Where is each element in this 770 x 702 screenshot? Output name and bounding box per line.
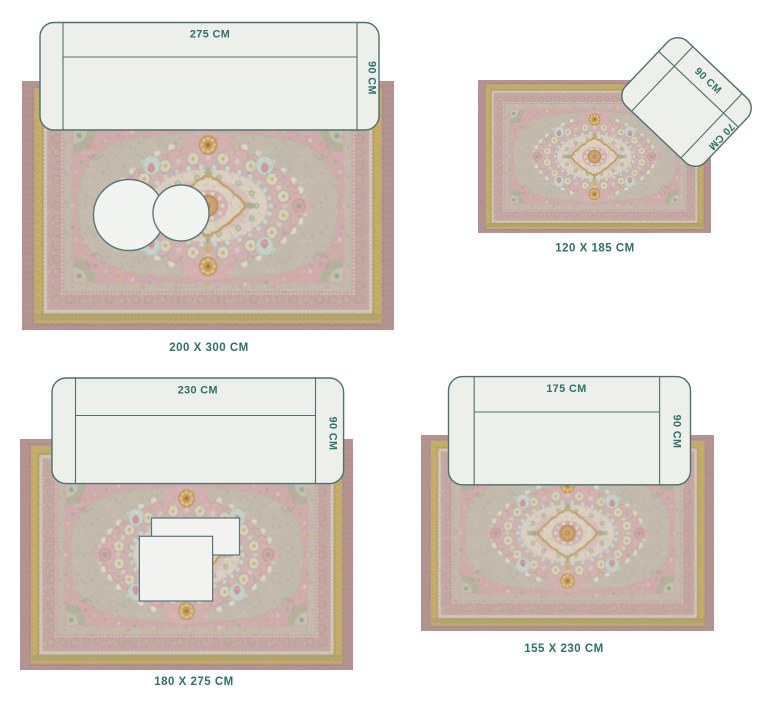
svg-text:230 CM: 230 CM — [178, 385, 218, 397]
svg-text:90 CM: 90 CM — [327, 417, 339, 451]
svg-text:155 X 230 CM: 155 X 230 CM — [524, 643, 604, 655]
svg-text:200 X 300 CM: 200 X 300 CM — [169, 342, 249, 354]
svg-text:90 CM: 90 CM — [366, 61, 378, 95]
svg-text:275 CM: 275 CM — [190, 29, 230, 41]
svg-text:175 CM: 175 CM — [546, 383, 586, 395]
svg-text:180 X 275 CM: 180 X 275 CM — [154, 676, 234, 688]
svg-text:120 X 185 CM: 120 X 185 CM — [555, 243, 635, 255]
svg-text:90 CM: 90 CM — [671, 415, 683, 449]
